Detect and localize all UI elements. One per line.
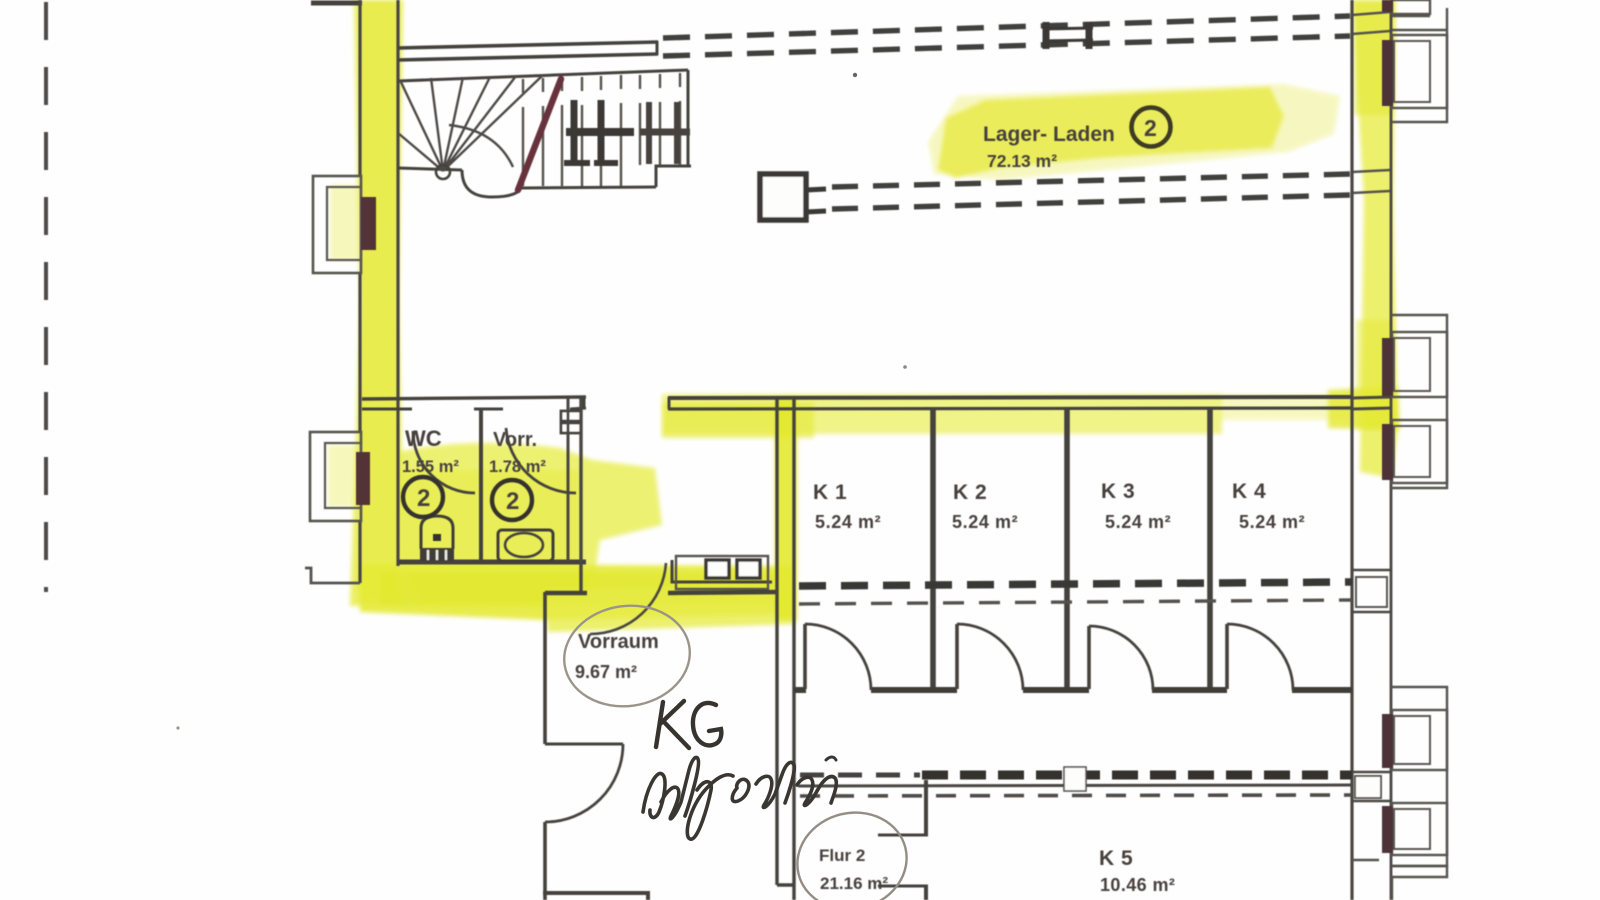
svg-text:K 4: K 4 xyxy=(1232,480,1266,503)
svg-text:Lager- Laden: Lager- Laden xyxy=(983,123,1115,146)
svg-text:K 5: K 5 xyxy=(1099,847,1133,870)
svg-text:K 1: K 1 xyxy=(813,481,847,504)
svg-text:K 2: K 2 xyxy=(953,481,987,504)
svg-text:1.78 m²: 1.78 m² xyxy=(489,458,546,476)
svg-text:2: 2 xyxy=(1144,115,1157,141)
svg-text:5.24 m²: 5.24 m² xyxy=(1239,512,1305,532)
svg-text:5.24 m²: 5.24 m² xyxy=(815,512,881,532)
svg-text:K 3: K 3 xyxy=(1101,480,1135,503)
svg-text:WC: WC xyxy=(405,426,442,451)
svg-text:10.46 m²: 10.46 m² xyxy=(1100,875,1175,895)
svg-text:1.55 m²: 1.55 m² xyxy=(402,458,459,476)
svg-text:Vorr.: Vorr. xyxy=(493,429,537,451)
svg-text:72.13 m²: 72.13 m² xyxy=(987,151,1057,171)
svg-text:Flur 2: Flur 2 xyxy=(819,846,865,865)
svg-text:9.67 m²: 9.67 m² xyxy=(575,662,637,682)
svg-text:2: 2 xyxy=(417,485,430,512)
svg-text:Vorraum: Vorraum xyxy=(578,631,659,653)
svg-text:2: 2 xyxy=(506,488,519,515)
svg-text:5.24 m²: 5.24 m² xyxy=(952,512,1018,532)
svg-text:21.16 m²: 21.16 m² xyxy=(820,874,888,893)
svg-text:5.24 m²: 5.24 m² xyxy=(1105,512,1171,532)
